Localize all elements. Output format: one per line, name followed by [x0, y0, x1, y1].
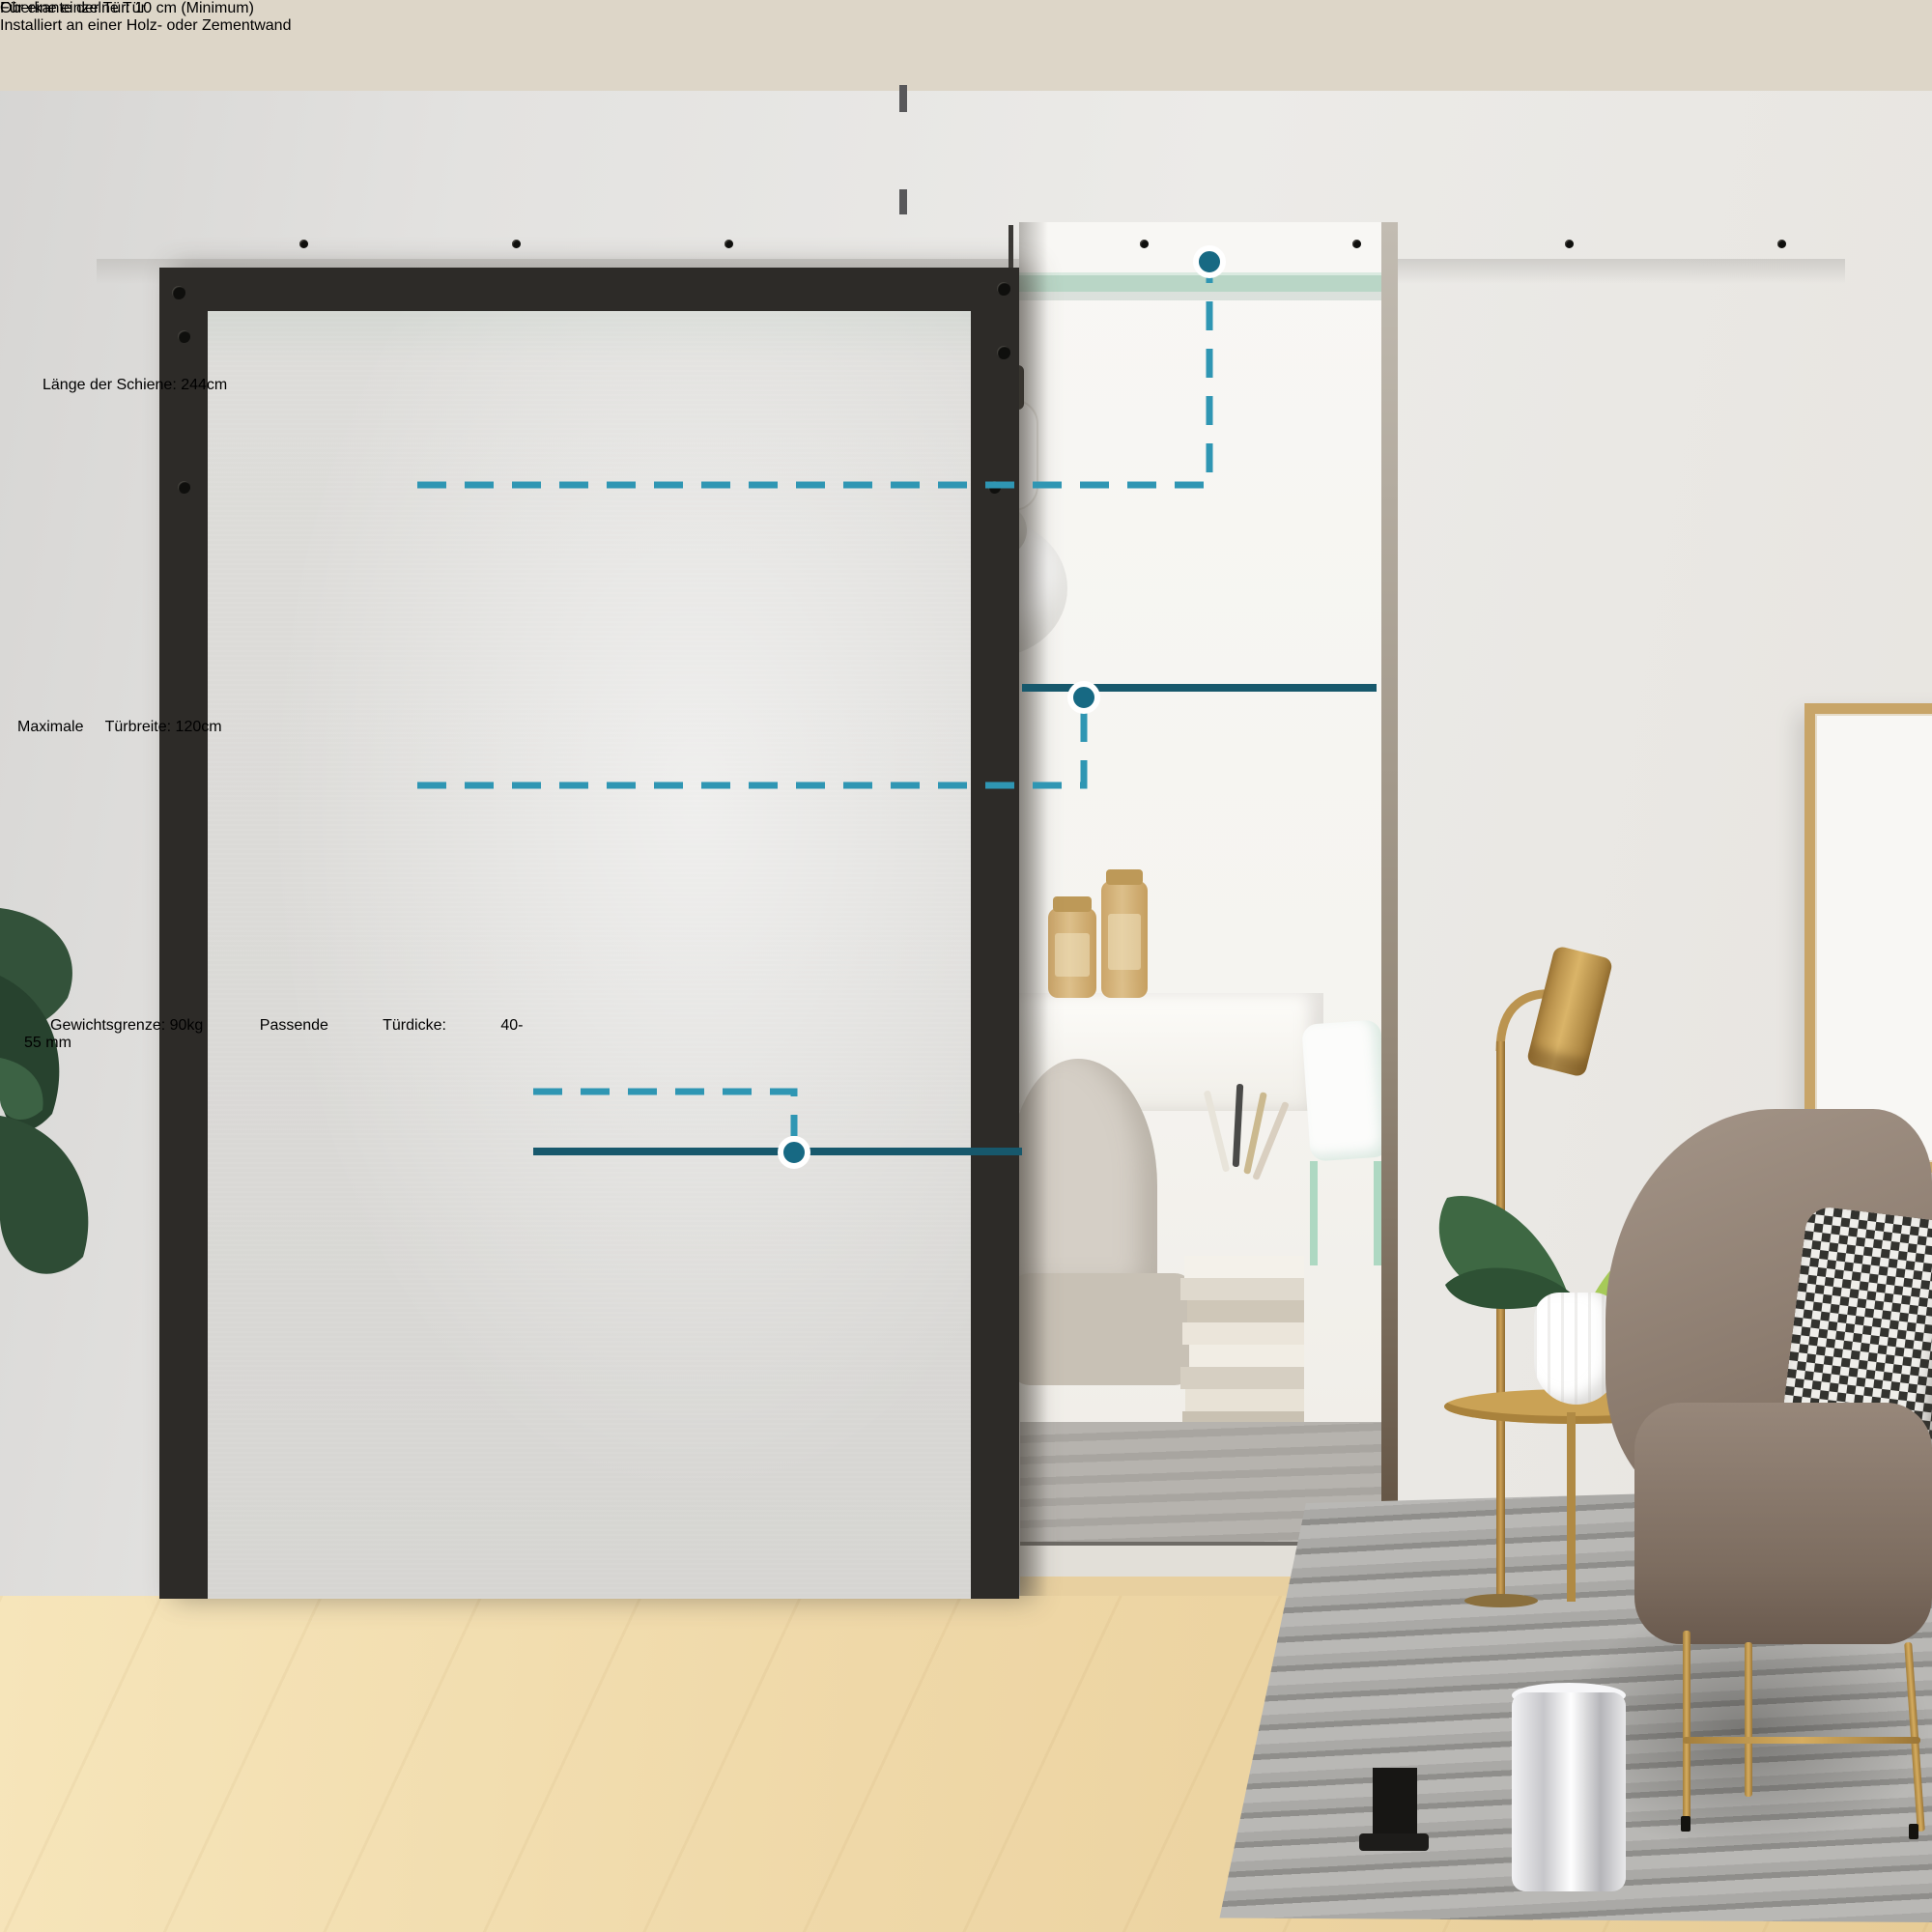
door-width-dashed-line [417, 712, 1084, 785]
rail-length-callout: Länge der Schiene: 244cm [29, 377, 417, 543]
rail-length-value: 244cm [181, 377, 243, 393]
product-infographic: Oberkante der Tür: 10 cm (Minimum) Länge… [0, 0, 1932, 1932]
rail-length-dashed-line [417, 274, 1209, 485]
door-width-line2: Türbreite: 120cm [105, 719, 240, 735]
door-width-dot [1070, 684, 1097, 711]
thickness-line1: Passende [260, 921, 379, 1034]
weight-thickness-callout: Gewichtsgrenze: 90kg Passende Türdicke: … [24, 1017, 533, 1501]
footer-line1: Für eine einzelne Tür [0, 0, 291, 17]
door-width-line1: Maximale [17, 707, 100, 735]
footer-text: Für eine einzelne Tür Installiert an ein… [0, 0, 291, 35]
weight-label: Gewichtsgrenze: [24, 996, 165, 1034]
weight-dot [781, 1139, 808, 1166]
rail-length-label: Länge der Schiene: [29, 352, 177, 393]
weight-dashed-line [533, 1092, 794, 1136]
footer-line2: Installiert an einer Holz- oder Zementwa… [0, 17, 291, 35]
rail-length-dot [1196, 248, 1223, 275]
thickness-line2: Türdicke: [383, 1017, 497, 1034]
weight-value: 90kg [170, 1017, 256, 1034]
door-width-callout: Maximale Türbreite: 120cm [17, 719, 417, 873]
